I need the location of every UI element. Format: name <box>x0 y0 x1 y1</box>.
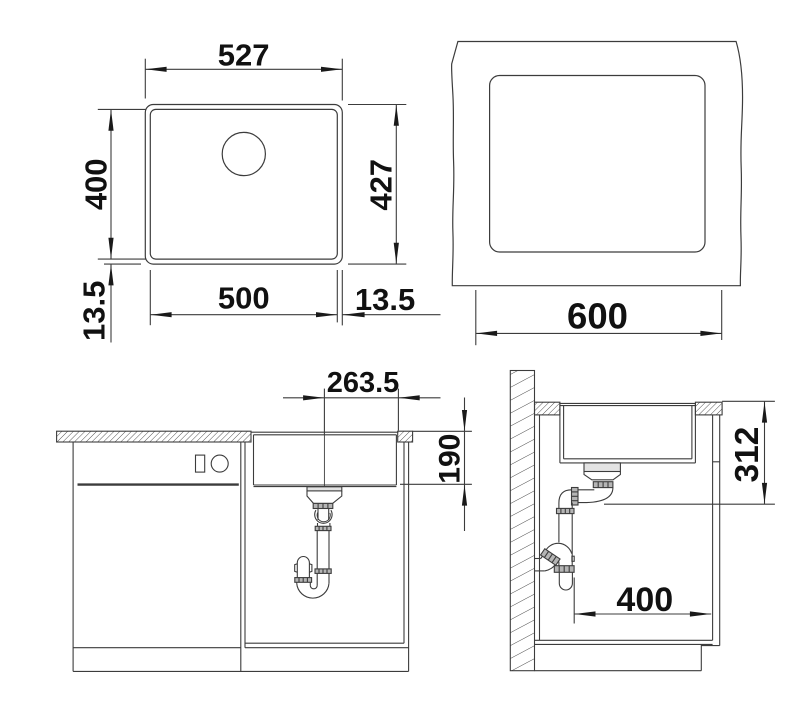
svg-text:427: 427 <box>363 159 398 211</box>
svg-text:600: 600 <box>567 296 628 337</box>
svg-text:527: 527 <box>218 38 270 73</box>
svg-text:190: 190 <box>434 434 467 484</box>
svg-text:13.5: 13.5 <box>355 282 415 317</box>
svg-text:400: 400 <box>79 158 114 210</box>
svg-text:263.5: 263.5 <box>327 367 400 399</box>
svg-text:13.5: 13.5 <box>77 281 112 341</box>
svg-text:400: 400 <box>616 581 673 619</box>
svg-text:500: 500 <box>218 281 270 316</box>
svg-text:312: 312 <box>729 427 766 483</box>
